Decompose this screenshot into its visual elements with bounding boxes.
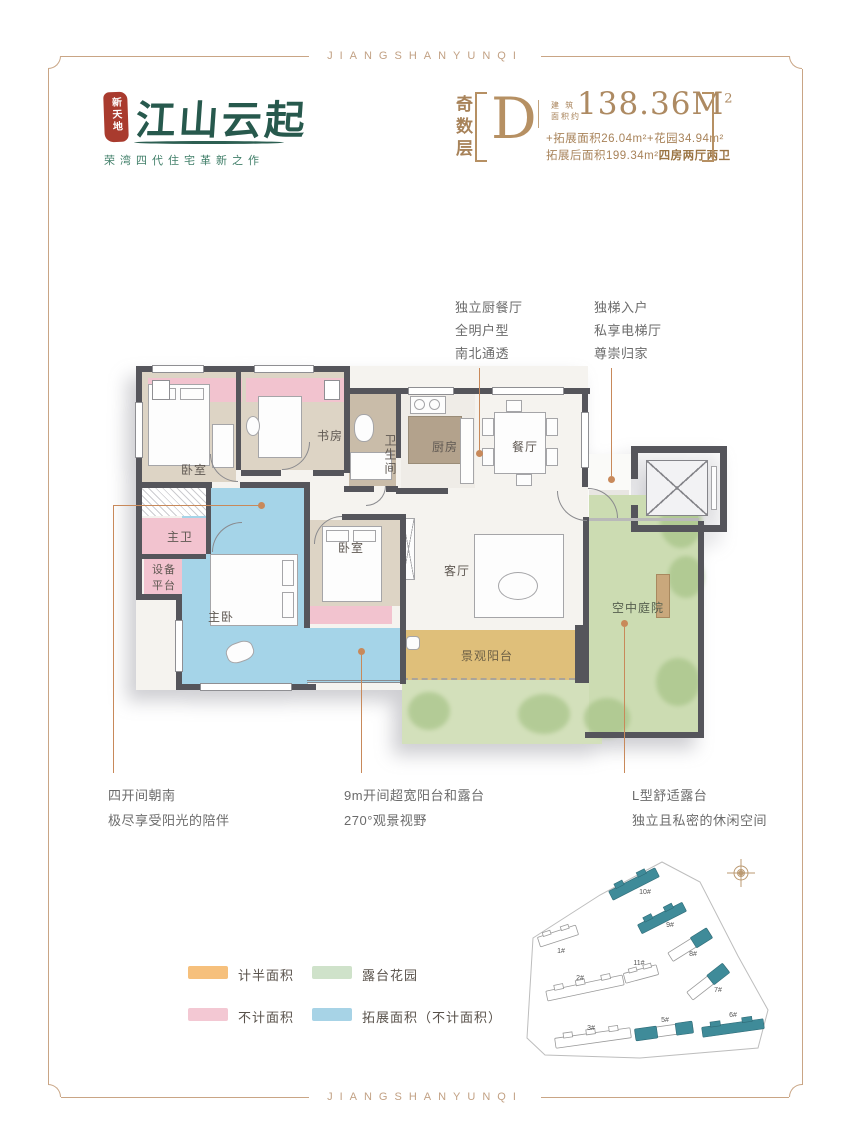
wall [575,625,589,683]
tree-4 [518,694,570,734]
building-7 [686,963,730,1001]
area-detail-1: +拓展面积26.04m²+花园34.94m² [546,130,724,146]
room-label-view-balcony: 景观阳台 [461,648,513,664]
dining-chair-3 [546,418,558,436]
dining-chair-6 [516,474,532,486]
leader-south-h [113,505,260,506]
room-label-master-bath: 主卫 [167,529,193,545]
note-kitchen: 独立厨餐厅 全明户型 南北通透 [455,296,523,365]
area-extended-balcony2 [307,628,400,683]
building-label: 5# [661,1017,669,1024]
note-terrace: L型舒适露台 独立且私密的休闲空间 [632,783,767,833]
brand-seal: 新天地 [103,92,129,143]
brochure-page: { "frame": { "top_label": "JIANGSHANYUNQ… [0,0,850,1144]
wall [396,488,448,494]
window [408,387,454,395]
note-line: 私享电梯厅 [594,319,662,342]
legend-label-excluded: 不计面积 [238,1007,294,1026]
building-label: 1# [557,948,565,955]
note-line: 独立且私密的休闲空间 [632,808,767,833]
toilet-bath [354,414,374,442]
room-label-equipment: 设备 平台 [152,562,176,594]
kitchen-counter [460,418,474,484]
brand-name: 江山云起 [134,88,310,146]
building-1 [537,922,579,947]
dining-chair-2 [482,448,494,466]
note-line: 全明户型 [455,319,523,342]
wall [698,521,704,738]
seal-text: 新天地 [107,97,123,134]
frame-title-top: JIANGSHANYUNQI [0,50,850,62]
building-label: 3# [587,1025,595,1032]
room-label-bath: 卫生间 [382,434,398,476]
window [175,620,183,672]
planter-balcony [406,636,420,650]
leader-dot-balcony [358,648,365,655]
wall [583,517,589,634]
legend-swatch-terrace-garden [312,966,352,979]
bay-unit-1 [152,380,170,400]
wall [344,394,350,473]
area-divider [538,100,539,128]
legend-label-extended: 拓展面积（不计面积） [362,1007,502,1026]
building-9 [636,899,687,934]
frame-left-line [48,69,49,1085]
sink-bowl-1 [414,399,425,410]
room-label-living: 客厅 [444,563,470,579]
note-line: 9m开间超宽阳台和露台 [344,783,485,808]
note-south: 四开间朝南 极尽享受阳光的陪伴 [108,783,230,833]
building-10 [607,864,660,900]
tree-5 [408,692,450,730]
bracket-close [702,92,714,162]
leader-dot-elevator [608,476,615,483]
note-line: 四开间朝南 [108,783,230,808]
building-label: 6# [729,1012,737,1019]
window [152,365,204,373]
wall [240,482,310,488]
floor-type-label: 奇数层 [450,95,475,161]
area-detail-2-normal: 拓展后面积199.34m² [546,150,659,162]
wall [206,488,211,554]
leader-terrace [624,627,625,773]
dining-chair-4 [546,448,558,466]
wall [342,514,406,520]
area-detail-2-bold: 四房两厅两卫 [659,150,731,162]
building-label: 11# [633,960,644,967]
building-label: 8# [689,951,697,958]
note-line: 独梯入户 [594,296,662,319]
note-line: 独立厨餐厅 [455,296,523,319]
compass-icon [727,859,755,887]
wall [313,470,344,476]
wall [400,624,406,684]
leader-dot-kitchen [476,450,483,457]
legend-swatch-excluded [188,1008,228,1021]
area-excluded-bedroom2 [310,606,392,624]
pillow-master-1 [282,560,294,586]
chair-study [246,416,260,436]
elevator-wall [631,525,727,532]
building-label: 10# [639,889,651,896]
window [254,365,314,373]
frame-title-bottom: JIANGSHANYUNQI [0,1091,850,1103]
wall [304,482,310,628]
legend-swatch-half-area [188,966,228,979]
legend-label-terrace-garden: 露台花园 [362,965,418,984]
bracket-open [475,92,487,162]
tree-3 [656,658,700,706]
wall [136,482,212,488]
leader-balcony [361,655,362,773]
elevator-wall [631,446,727,453]
area-shower [142,488,206,516]
brand-tagline: 荣湾四代住宅革新之作 [104,152,264,168]
elevator-wall [720,446,727,532]
leader-south-v [113,505,114,773]
building-label: 9# [666,922,674,929]
room-label-courtyard: 空中庭院 [612,600,664,616]
elevator-wall [631,505,638,525]
wall [142,554,206,559]
leader-dot-terrace [621,620,628,627]
pillow-2 [180,388,204,400]
note-line: 270°观景视野 [344,808,485,833]
window [492,387,564,395]
wall [400,514,406,628]
area-exponent: 2 [724,92,733,107]
elevator-door-slot [711,466,717,510]
room-label-bedroom2: 卧室 [338,540,364,556]
elevator-cab [646,460,708,516]
building-5 [634,1021,693,1041]
coffee-table [498,572,538,600]
unit-letter: D [491,86,537,152]
note-line: L型舒适露台 [632,783,767,808]
legend-label-half-area: 计半面积 [238,965,294,984]
window [200,683,292,691]
note-line: 尊崇归家 [594,342,662,365]
dining-chair-1 [482,418,494,436]
building-label: 2# [576,975,584,982]
elevator-wall [631,453,638,479]
wall [585,732,704,738]
bay-unit-2 [324,380,340,400]
note-balcony: 9m开间超宽阳台和露台 270°观景视野 [344,783,485,833]
building-label: 7# [714,987,722,994]
note-line: 极尽享受阳光的陪伴 [108,808,230,833]
note-line: 南北通透 [455,342,523,365]
pillow-master-2 [282,592,294,618]
siteplan: 1# 2# 3# 5# 6# 7# 8# 9# 10# 11# [512,850,804,1068]
wall [241,470,281,476]
legend-swatch-extended [312,1008,352,1021]
room-label-bedroom1: 卧室 [181,462,207,478]
window [581,412,589,468]
room-label-study: 书房 [317,428,343,444]
floorplan: 卧室 书房 卫生间 厨房 餐厅 客厅 主卫 设备 平台 主卧 卧室 景观阳台 空… [108,358,728,756]
note-elevator: 独梯入户 私享电梯厅 尊崇归家 [594,296,662,365]
brand-underline [134,141,284,144]
room-label-master: 主卧 [208,609,234,625]
room-label-kitchen: 厨房 [432,439,458,455]
window [135,402,143,458]
building-2 [545,971,624,1001]
sink-bowl-2 [429,399,440,410]
courtyard-top-edge [589,518,699,521]
leader-elevator [611,368,612,476]
room-label-dining: 餐厅 [512,439,538,455]
dining-chair-5 [506,400,522,412]
leader-kitchen [479,368,480,450]
